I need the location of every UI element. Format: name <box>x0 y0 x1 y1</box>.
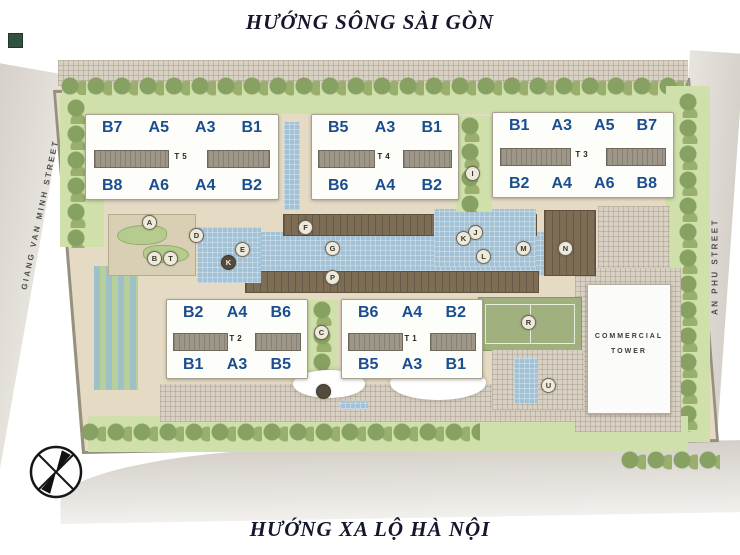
amenity-marker: C <box>314 325 329 340</box>
unit-row: B1 A3 A5 B7 <box>493 117 673 135</box>
unit-row: B2 A4 A6 B8 <box>493 175 673 193</box>
unit-row: B1 A3 B5 <box>167 356 307 374</box>
compass-rose-icon <box>28 444 84 500</box>
amenity-marker: P <box>325 270 340 285</box>
unit-row: B5 A3 B1 <box>312 119 458 137</box>
amenity-marker: R <box>521 315 536 330</box>
unit-label: A3 <box>227 356 247 374</box>
unit-label: B8 <box>102 177 122 195</box>
amenity-marker: B <box>147 251 162 266</box>
amenity-marker: K <box>456 231 471 246</box>
garden-shrub <box>117 225 167 245</box>
south-pool-deck <box>245 271 539 293</box>
amenity-marker: T <box>163 251 178 266</box>
unit-label: A4 <box>552 175 572 193</box>
south-pool <box>514 358 538 404</box>
unit-label: B8 <box>637 175 657 193</box>
commercial-tower-label: TOWER <box>595 344 663 359</box>
unit-label: A4 <box>227 304 247 322</box>
plaza-water-strip <box>340 401 368 409</box>
commercial-tower: COMMERCIAL TOWER <box>587 284 671 414</box>
tower-t1: B6 A4 B2 T1 B5 A3 B1 <box>341 299 483 379</box>
amenity-marker: F <box>298 220 313 235</box>
tower-t4: B5 A3 B1 T4 B6 A4 B2 <box>311 114 459 200</box>
amenity-marker: A <box>142 215 157 230</box>
unit-row: B5 A3 B1 <box>342 356 482 374</box>
amenity-marker: I <box>465 166 480 181</box>
unit-label: B2 <box>242 177 262 195</box>
unit-label: A3 <box>552 117 572 135</box>
tower-label: T3 <box>493 150 673 159</box>
unit-label: B6 <box>358 304 378 322</box>
commercial-tower-label: COMMERCIAL <box>595 329 663 344</box>
east-paved-court <box>598 206 670 272</box>
unit-label: B2 <box>446 304 466 322</box>
unit-label: A3 <box>375 119 395 137</box>
amenity-marker: E <box>235 242 250 257</box>
tower-label: T1 <box>342 334 482 343</box>
unit-label: B6 <box>271 304 291 322</box>
tower-t5: B7 A5 A3 B1 T5 B8 A6 A4 B2 <box>85 114 279 200</box>
tower-label: T5 <box>86 152 278 161</box>
unit-label: B5 <box>328 119 348 137</box>
tower-label: T4 <box>312 152 458 161</box>
walk-t4-t3 <box>456 116 492 212</box>
unit-row: B6 A4 B2 <box>312 177 458 195</box>
unit-label: B1 <box>242 119 262 137</box>
bottom-right-tree-row <box>620 446 720 478</box>
corner-swatch <box>8 33 23 48</box>
amenity-marker: K <box>221 255 236 270</box>
unit-label: B7 <box>102 119 122 137</box>
unit-label: A5 <box>594 117 614 135</box>
unit-label: A4 <box>402 304 422 322</box>
unit-label: A3 <box>195 119 215 137</box>
canal-t5-t4 <box>284 122 300 210</box>
unit-label: A3 <box>402 356 422 374</box>
unit-label: B2 <box>422 177 442 195</box>
unit-label: B1 <box>509 117 529 135</box>
amenity-marker <box>316 384 331 399</box>
unit-row: B8 A6 A4 B2 <box>86 177 278 195</box>
unit-label: A4 <box>195 177 215 195</box>
amenity-marker: G <box>325 241 340 256</box>
unit-label: B2 <box>509 175 529 193</box>
amenity-marker: M <box>516 241 531 256</box>
unit-label: B1 <box>183 356 203 374</box>
tower-t3: B1 A3 A5 B7 T3 B2 A4 A6 B8 <box>492 112 674 198</box>
unit-label: B1 <box>422 119 442 137</box>
striped-garden <box>94 266 138 390</box>
unit-label: B2 <box>183 304 203 322</box>
unit-label: B5 <box>358 356 378 374</box>
unit-row: B7 A5 A3 B1 <box>86 119 278 137</box>
tower-t2: B2 A4 B6 T2 B1 A3 B5 <box>166 299 308 379</box>
amenity-marker: D <box>189 228 204 243</box>
amenity-marker: N <box>558 241 573 256</box>
bottom-tree-row <box>80 418 480 452</box>
unit-row: B6 A4 B2 <box>342 304 482 322</box>
unit-label: A4 <box>375 177 395 195</box>
street-label-an-phu: AN PHU STREET <box>711 182 720 352</box>
amenity-marker: L <box>476 249 491 264</box>
tower-label: T2 <box>167 334 307 343</box>
site-plan: B7 A5 A3 B1 T5 B8 A6 A4 B2 B5 A3 B1 T4 B… <box>0 0 740 555</box>
unit-label: A5 <box>149 119 169 137</box>
south-pool-terrace <box>492 350 584 410</box>
unit-label: B1 <box>446 356 466 374</box>
unit-row: B2 A4 B6 <box>167 304 307 322</box>
direction-title-saigon-river: HƯỚNG SÔNG SÀI GÒN <box>0 10 740 35</box>
unit-label: B6 <box>328 177 348 195</box>
unit-label: A6 <box>149 177 169 195</box>
top-tree-row <box>60 72 688 104</box>
unit-label: B5 <box>271 356 291 374</box>
unit-label: B7 <box>637 117 657 135</box>
unit-label: A6 <box>594 175 614 193</box>
amenity-marker: U <box>541 378 556 393</box>
direction-title-hanoi-highway: HƯỚNG XA LỘ HÀ NỘI <box>0 517 740 542</box>
